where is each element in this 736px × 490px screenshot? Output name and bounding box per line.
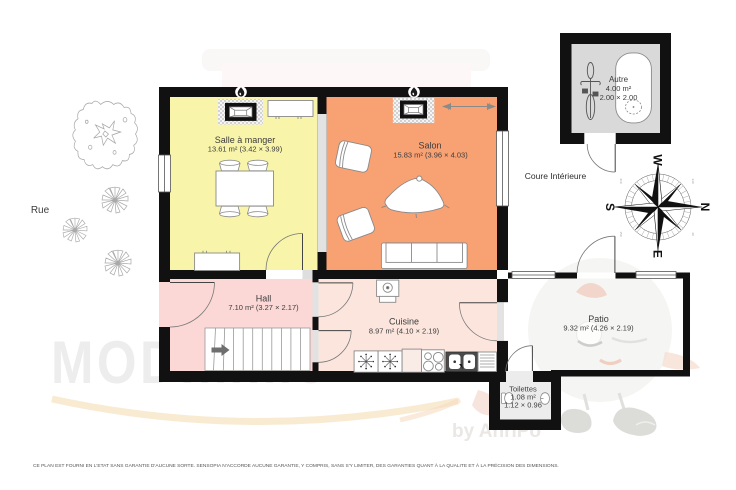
svg-text:210: 210 — [619, 178, 623, 183]
svg-text:Coure Intérieure: Coure Intérieure — [525, 171, 587, 181]
svg-text:8.97 m² (4.10 × 2.19): 8.97 m² (4.10 × 2.19) — [369, 327, 440, 336]
svg-text:CE PLAN EST FOURNI EN L'ETAT S: CE PLAN EST FOURNI EN L'ETAT SANS GARANT… — [33, 462, 559, 469]
svg-text:13.61 m² (3.42 × 3.99): 13.61 m² (3.42 × 3.99) — [208, 145, 283, 154]
svg-text:2.00 × 2.00: 2.00 × 2.00 — [600, 93, 638, 102]
svg-text:E: E — [651, 250, 665, 258]
svg-text:1.12 × 0.96: 1.12 × 0.96 — [504, 401, 542, 410]
svg-text:7.10 m² (3.27 × 2.17): 7.10 m² (3.27 × 2.17) — [228, 303, 299, 312]
svg-text:9.32 m² (4.26 × 2.19): 9.32 m² (4.26 × 2.19) — [563, 324, 634, 333]
svg-text:Cuisine: Cuisine — [389, 317, 419, 327]
svg-text:Patio: Patio — [588, 314, 609, 324]
svg-text:W: W — [651, 154, 665, 166]
svg-text:Salle à manger: Salle à manger — [215, 135, 276, 145]
svg-text:S: S — [603, 203, 617, 211]
svg-text:30: 30 — [691, 232, 695, 236]
svg-text:Autre: Autre — [609, 75, 629, 84]
svg-text:150: 150 — [619, 231, 623, 236]
svg-text:Hall: Hall — [256, 294, 272, 304]
svg-text:4.00 m²: 4.00 m² — [606, 84, 632, 93]
svg-text:15.83 m² (3.96 × 4.03): 15.83 m² (3.96 × 4.03) — [393, 151, 468, 160]
svg-text:N: N — [698, 203, 712, 212]
svg-text:330: 330 — [691, 178, 695, 183]
svg-text:Rue: Rue — [31, 205, 50, 216]
svg-text:Salon: Salon — [418, 141, 441, 151]
